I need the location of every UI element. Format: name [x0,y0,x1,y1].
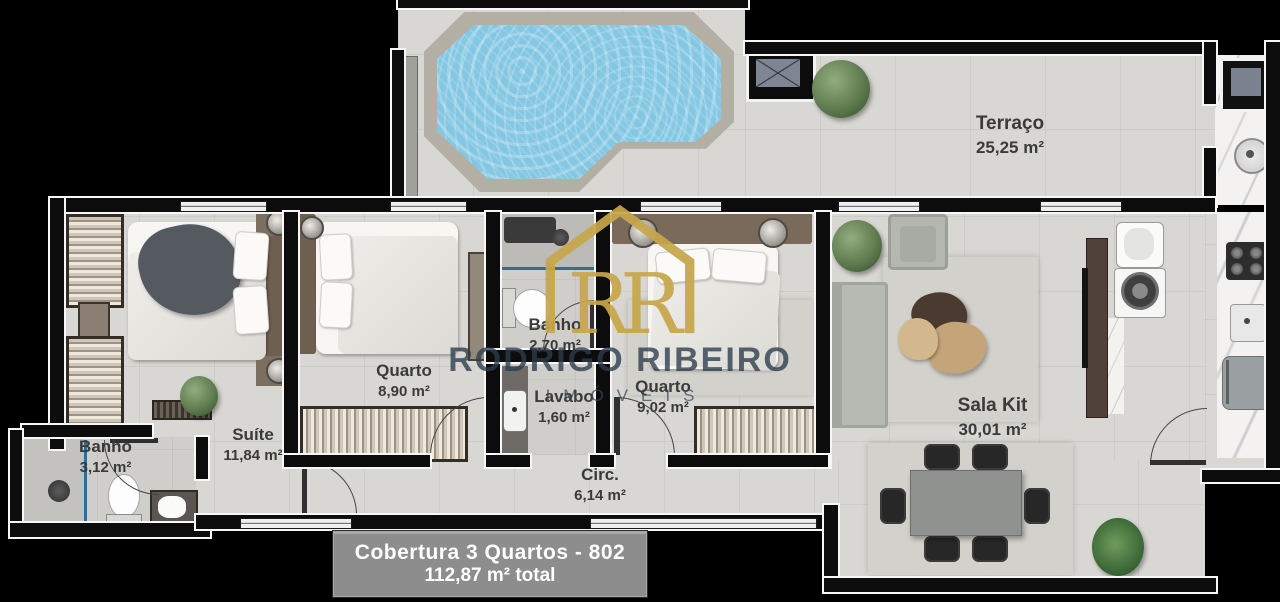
tv-icon [1082,268,1088,368]
room-area: 30,01 m² [925,419,1060,441]
room-name: Suíte [195,424,311,446]
kitchen-door-leaf [1150,460,1206,465]
stove-burner-2 [1250,247,1262,259]
coffee-table-small [898,318,938,360]
room-name: Sala Kit [925,394,1060,419]
pool-side-planter [402,56,418,204]
room-label-banho-312: Banho 3,12 m² [48,436,163,478]
terrace-door [838,201,920,212]
sala-plant [832,220,882,272]
bedroom1-lamp [300,216,324,240]
wall [1266,42,1280,482]
room-label-suite: Suíte 11,84 m² [195,424,311,466]
dining-chair-3 [924,536,960,562]
washing-machine-drum [1121,272,1159,310]
fridge [1222,356,1270,410]
fridge-handle [1226,360,1229,404]
wall [1204,42,1216,104]
wall [1202,470,1280,482]
terrace-sink-drain [1246,150,1254,158]
roof-hatch-panel [756,59,800,87]
room-area: 6,14 m² [545,486,655,506]
room-area: 11,84 m² [195,446,311,466]
plan-total-area: 112,87 m² total [425,565,556,587]
brand-monogram: RR [567,256,685,353]
sala-palm-plant [1092,518,1144,576]
bathroom-312-shower-head [48,480,70,502]
terrace-plant [812,60,870,118]
window [180,201,267,212]
suite-pillow-2 [232,285,269,335]
wall [10,523,210,537]
terrace-appliance-panel [1231,68,1261,96]
wall [486,455,530,467]
suite-wardrobe-top [66,214,124,308]
suite-wardrobe-bottom [66,336,124,430]
suite-plant [180,376,218,416]
wall [745,42,1212,54]
stove-burner-1 [1231,247,1243,259]
kitchen-faucet [1244,318,1250,324]
room-label-sala-kit: Sala Kit 30,01 m² [925,394,1060,441]
wall [392,50,404,208]
lavabo-faucet [512,407,517,412]
room-area: 25,25 m² [930,137,1090,159]
bedroom1-pillow-1 [319,233,353,281]
laundry-ledge [1106,318,1124,414]
plan-title: Cobertura 3 Quartos - 802 [355,541,625,565]
floor-plan-canvas: Terraço 25,25 m² Suíte 11,84 m² Quarto 8… [0,0,1280,602]
room-name: Terraço [930,112,1090,137]
suite-pillow-1 [232,231,269,281]
bathroom-312-basin [158,496,186,518]
wall [824,578,1216,592]
terrace-door [1040,201,1122,212]
stove-burner-4 [1250,263,1262,275]
plan-title-box: Cobertura 3 Quartos - 802 112,87 m² tota… [333,531,647,597]
dining-table [910,470,1022,536]
room-label-terraco: Terraço 25,25 m² [930,112,1090,159]
room-area: 1,60 m² [520,408,608,428]
wall [50,198,64,439]
dining-chair-2 [972,444,1008,470]
suite-door-leaf [302,460,307,514]
wall [668,455,828,467]
dining-chair-5 [880,488,906,524]
brand-subtitle: IMÓVEIS [410,386,830,406]
wall [398,0,748,8]
dining-chair-6 [1024,488,1050,524]
room-area: 3,12 m² [48,458,163,478]
watermark: RR RODRIGO RIBEIRO IMÓVEIS [410,205,830,400]
laundry-tub-basin [1124,228,1154,260]
brand-name: RODRIGO RIBEIRO [410,341,830,380]
suite-wardrobe-rod [78,302,110,340]
wall [10,430,22,537]
room-name: Circ. [545,464,655,486]
brand-logo-icon: RR [535,205,705,355]
tv-panel [1086,238,1108,418]
stove-burner-3 [1231,263,1243,275]
room-name: Banho [48,436,163,458]
bedroom1-pillow-2 [319,281,353,329]
dining-chair-1 [924,444,960,470]
sala-sofa-back [828,282,842,428]
room-label-circ: Circ. 6,14 m² [545,464,655,506]
window [590,518,817,529]
dining-chair-4 [972,536,1008,562]
sala-armchair-cushion [900,226,936,262]
window [240,518,352,529]
